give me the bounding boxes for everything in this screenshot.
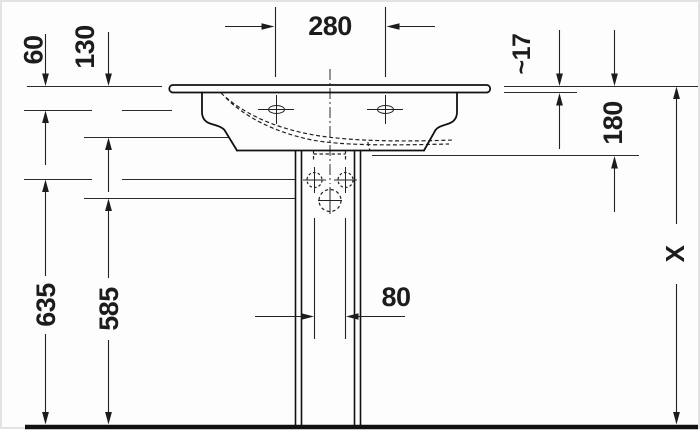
drain-circle-icon	[318, 187, 342, 214]
dim-label-130: 130	[70, 25, 100, 69]
dim-label-635: 635	[31, 283, 61, 327]
drawing-sheet: 280 60 130 ~17 180 635 585 80 X	[0, 0, 700, 429]
dim-80	[255, 218, 405, 339]
hidden-bowl-lines	[221, 93, 454, 150]
fixing-hole-left-icon	[303, 167, 326, 193]
tap-hole-left-icon	[258, 95, 294, 124]
dim-label-x: X	[660, 244, 690, 262]
dim-label-180: 180	[598, 101, 628, 145]
tap-hole-right-icon	[367, 95, 403, 124]
fixing-hole-right-icon	[334, 167, 357, 193]
left-wall	[202, 93, 237, 151]
dim-label-585: 585	[94, 287, 124, 331]
technical-drawing: 280 60 130 ~17 180 635 585 80 X	[2, 2, 700, 431]
dim-label-60: 60	[19, 35, 49, 64]
reference-lines-left	[24, 87, 295, 199]
right-wall	[424, 93, 457, 151]
dim-label-80: 80	[381, 282, 410, 312]
dim-label-17: ~17	[508, 34, 536, 75]
dim-label-280: 280	[308, 11, 352, 41]
pedestal	[296, 151, 361, 425]
